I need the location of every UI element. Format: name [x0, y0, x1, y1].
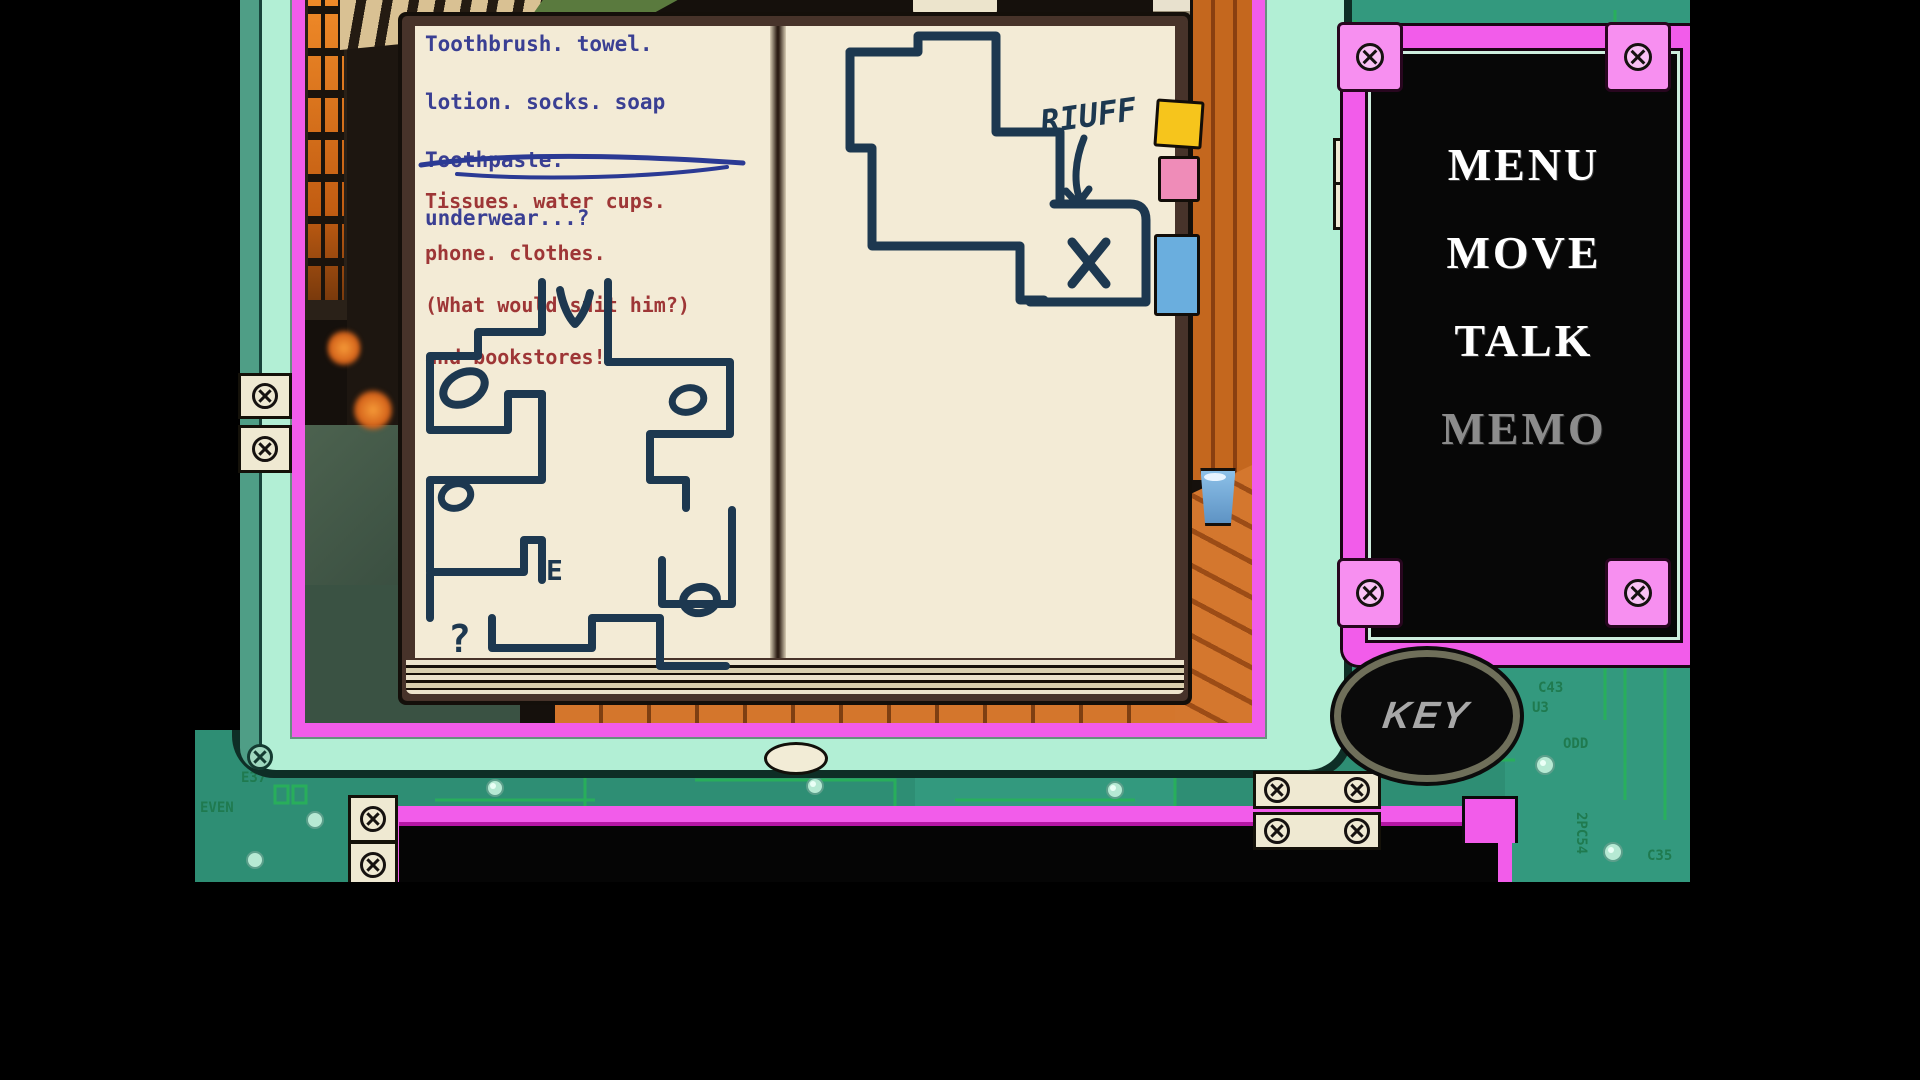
right-page-map-drawing: RIUFF — [808, 16, 1180, 318]
screw-icon — [252, 436, 278, 462]
key-items-button[interactable]: KEY — [1334, 650, 1520, 782]
note-line: Toothbrush. towel. — [425, 32, 653, 56]
pcb-label: ODD — [1563, 736, 1588, 752]
map-annotation-riuff: RIUFF — [1038, 90, 1139, 141]
note-line: phone. clothes. — [425, 241, 606, 265]
pcb-label: C35 — [1647, 848, 1672, 864]
menu-corner-screw-plate — [1605, 22, 1671, 92]
screw-icon — [1356, 579, 1384, 607]
bookmark-tab-pink[interactable] — [1158, 156, 1200, 202]
pcb-label: C43 — [1538, 680, 1563, 696]
screw-icon — [1344, 777, 1370, 803]
screw-icon — [1264, 818, 1290, 844]
screw-icon — [1624, 579, 1652, 607]
message-screw-plate — [348, 795, 398, 843]
bedroom-scene: Toothbrush. towel. lotion. socks. soap T… — [305, 0, 1252, 723]
pcb-label: EVEN — [200, 800, 234, 816]
bezel-screw — [247, 744, 273, 770]
pcb-label: 2PC54 — [1573, 812, 1589, 854]
menu-item-move[interactable]: MOVE — [1446, 226, 1601, 279]
menu-corner-screw-plate — [1605, 558, 1671, 628]
menu-item-menu[interactable]: MENU — [1448, 138, 1601, 191]
menu-item-talk[interactable]: TALK — [1455, 314, 1594, 367]
bookmark-tab-blue[interactable] — [1154, 234, 1200, 316]
key-button-label: KEY — [1380, 695, 1473, 738]
scene-edge-shadow — [195, 0, 240, 730]
screw-icon — [252, 383, 278, 409]
lamp-glow — [353, 388, 393, 432]
pcb-label: U3 — [1532, 700, 1549, 716]
game-screen: C43 U3 ODD C35 E37 EVEN 2PC54 — [0, 0, 1920, 1080]
screw-icon — [1344, 818, 1370, 844]
map-label-question: ? — [448, 617, 471, 661]
bookmark-tab-yellow[interactable] — [1153, 98, 1204, 149]
menu-item-memo[interactable]: MEMO — [1441, 402, 1606, 455]
lamp-glow — [327, 328, 361, 368]
memo-screen: Toothbrush. towel. lotion. socks. soap T… — [305, 0, 1252, 723]
screw-icon — [1356, 43, 1384, 71]
notebook-gutter — [770, 26, 786, 658]
screw-icon — [1264, 777, 1290, 803]
ink-divider-scribble — [415, 150, 750, 184]
screw-icon — [360, 852, 386, 878]
message-screw-plate — [348, 841, 398, 888]
message-window-corner-tab — [1462, 796, 1518, 843]
command-menu-screen: MENU MOVE TALK MEMO — [1368, 51, 1680, 640]
menu-corner-screw-plate — [1337, 22, 1403, 92]
note-line: Tissues. water cups. — [425, 189, 666, 213]
bottom-right-screw-bar — [1253, 812, 1381, 850]
window-panes — [308, 0, 344, 300]
screw-icon — [360, 806, 386, 832]
left-screw-plate — [238, 373, 292, 419]
screw-icon — [1624, 43, 1652, 71]
map-label-e: E — [546, 554, 563, 587]
tablet-home-button[interactable] — [764, 742, 828, 775]
menu-corner-screw-plate — [1337, 558, 1403, 628]
left-screw-plate — [238, 425, 292, 473]
left-page-map-drawing: E ? — [400, 268, 755, 683]
bottom-right-screw-bar — [1253, 771, 1381, 809]
note-line: lotion. socks. soap — [425, 90, 665, 114]
letterbox-bottom — [0, 882, 1920, 1080]
